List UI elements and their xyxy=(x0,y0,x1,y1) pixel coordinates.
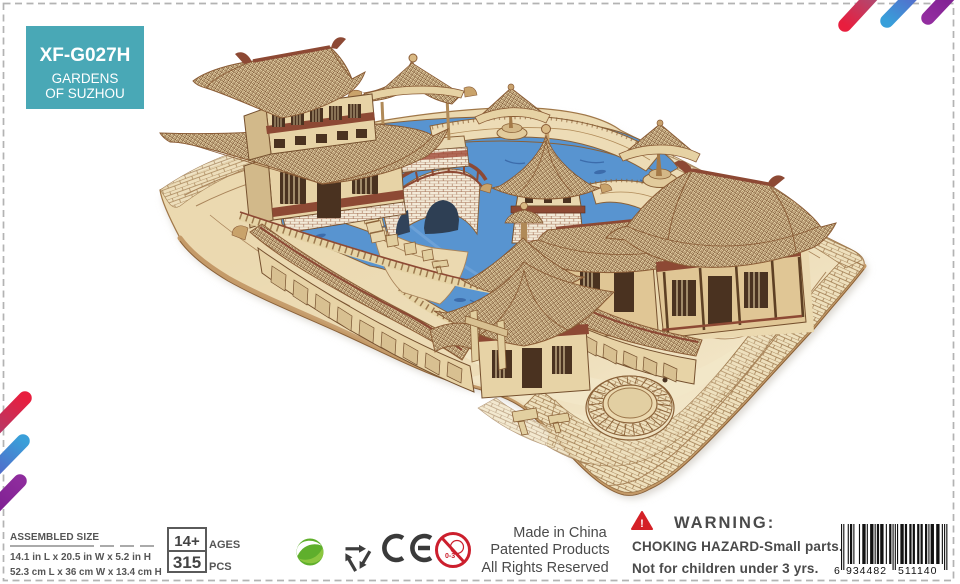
svg-text:All Rights Reserved: All Rights Reserved xyxy=(481,560,608,576)
svg-text:Patented Products: Patented Products xyxy=(490,542,609,558)
svg-text:0-3: 0-3 xyxy=(445,553,455,560)
svg-text:14.1 in L x 20.5 in W x 5.2 in: 14.1 in L x 20.5 in W x 5.2 in H xyxy=(10,552,151,563)
svg-text:6: 6 xyxy=(834,565,840,577)
svg-text:ASSEMBLED SIZE: ASSEMBLED SIZE xyxy=(10,532,99,543)
svg-text:PCS: PCS xyxy=(209,561,232,573)
svg-text:GARDENS: GARDENS xyxy=(52,71,119,86)
svg-text:CHOKING HAZARD-Small parts.: CHOKING HAZARD-Small parts. xyxy=(632,539,843,554)
svg-text:315: 315 xyxy=(173,553,201,572)
svg-text:WARNING:: WARNING: xyxy=(674,514,775,532)
svg-text:14+: 14+ xyxy=(174,533,200,550)
svg-text:AGES: AGES xyxy=(209,539,240,551)
svg-text:934482: 934482 xyxy=(846,565,887,577)
svg-text:!: ! xyxy=(640,518,644,530)
svg-text:Made in China: Made in China xyxy=(513,525,607,541)
svg-text:XF-G027H: XF-G027H xyxy=(40,45,131,66)
svg-text:Not for children under 3 yrs.: Not for children under 3 yrs. xyxy=(632,561,819,576)
svg-text:511140: 511140 xyxy=(898,565,937,577)
svg-text:OF SUZHOU: OF SUZHOU xyxy=(45,86,125,101)
svg-text:52.3 cm L x 36 cm W x 13.4 cm: 52.3 cm L x 36 cm W x 13.4 cm H xyxy=(10,567,162,578)
